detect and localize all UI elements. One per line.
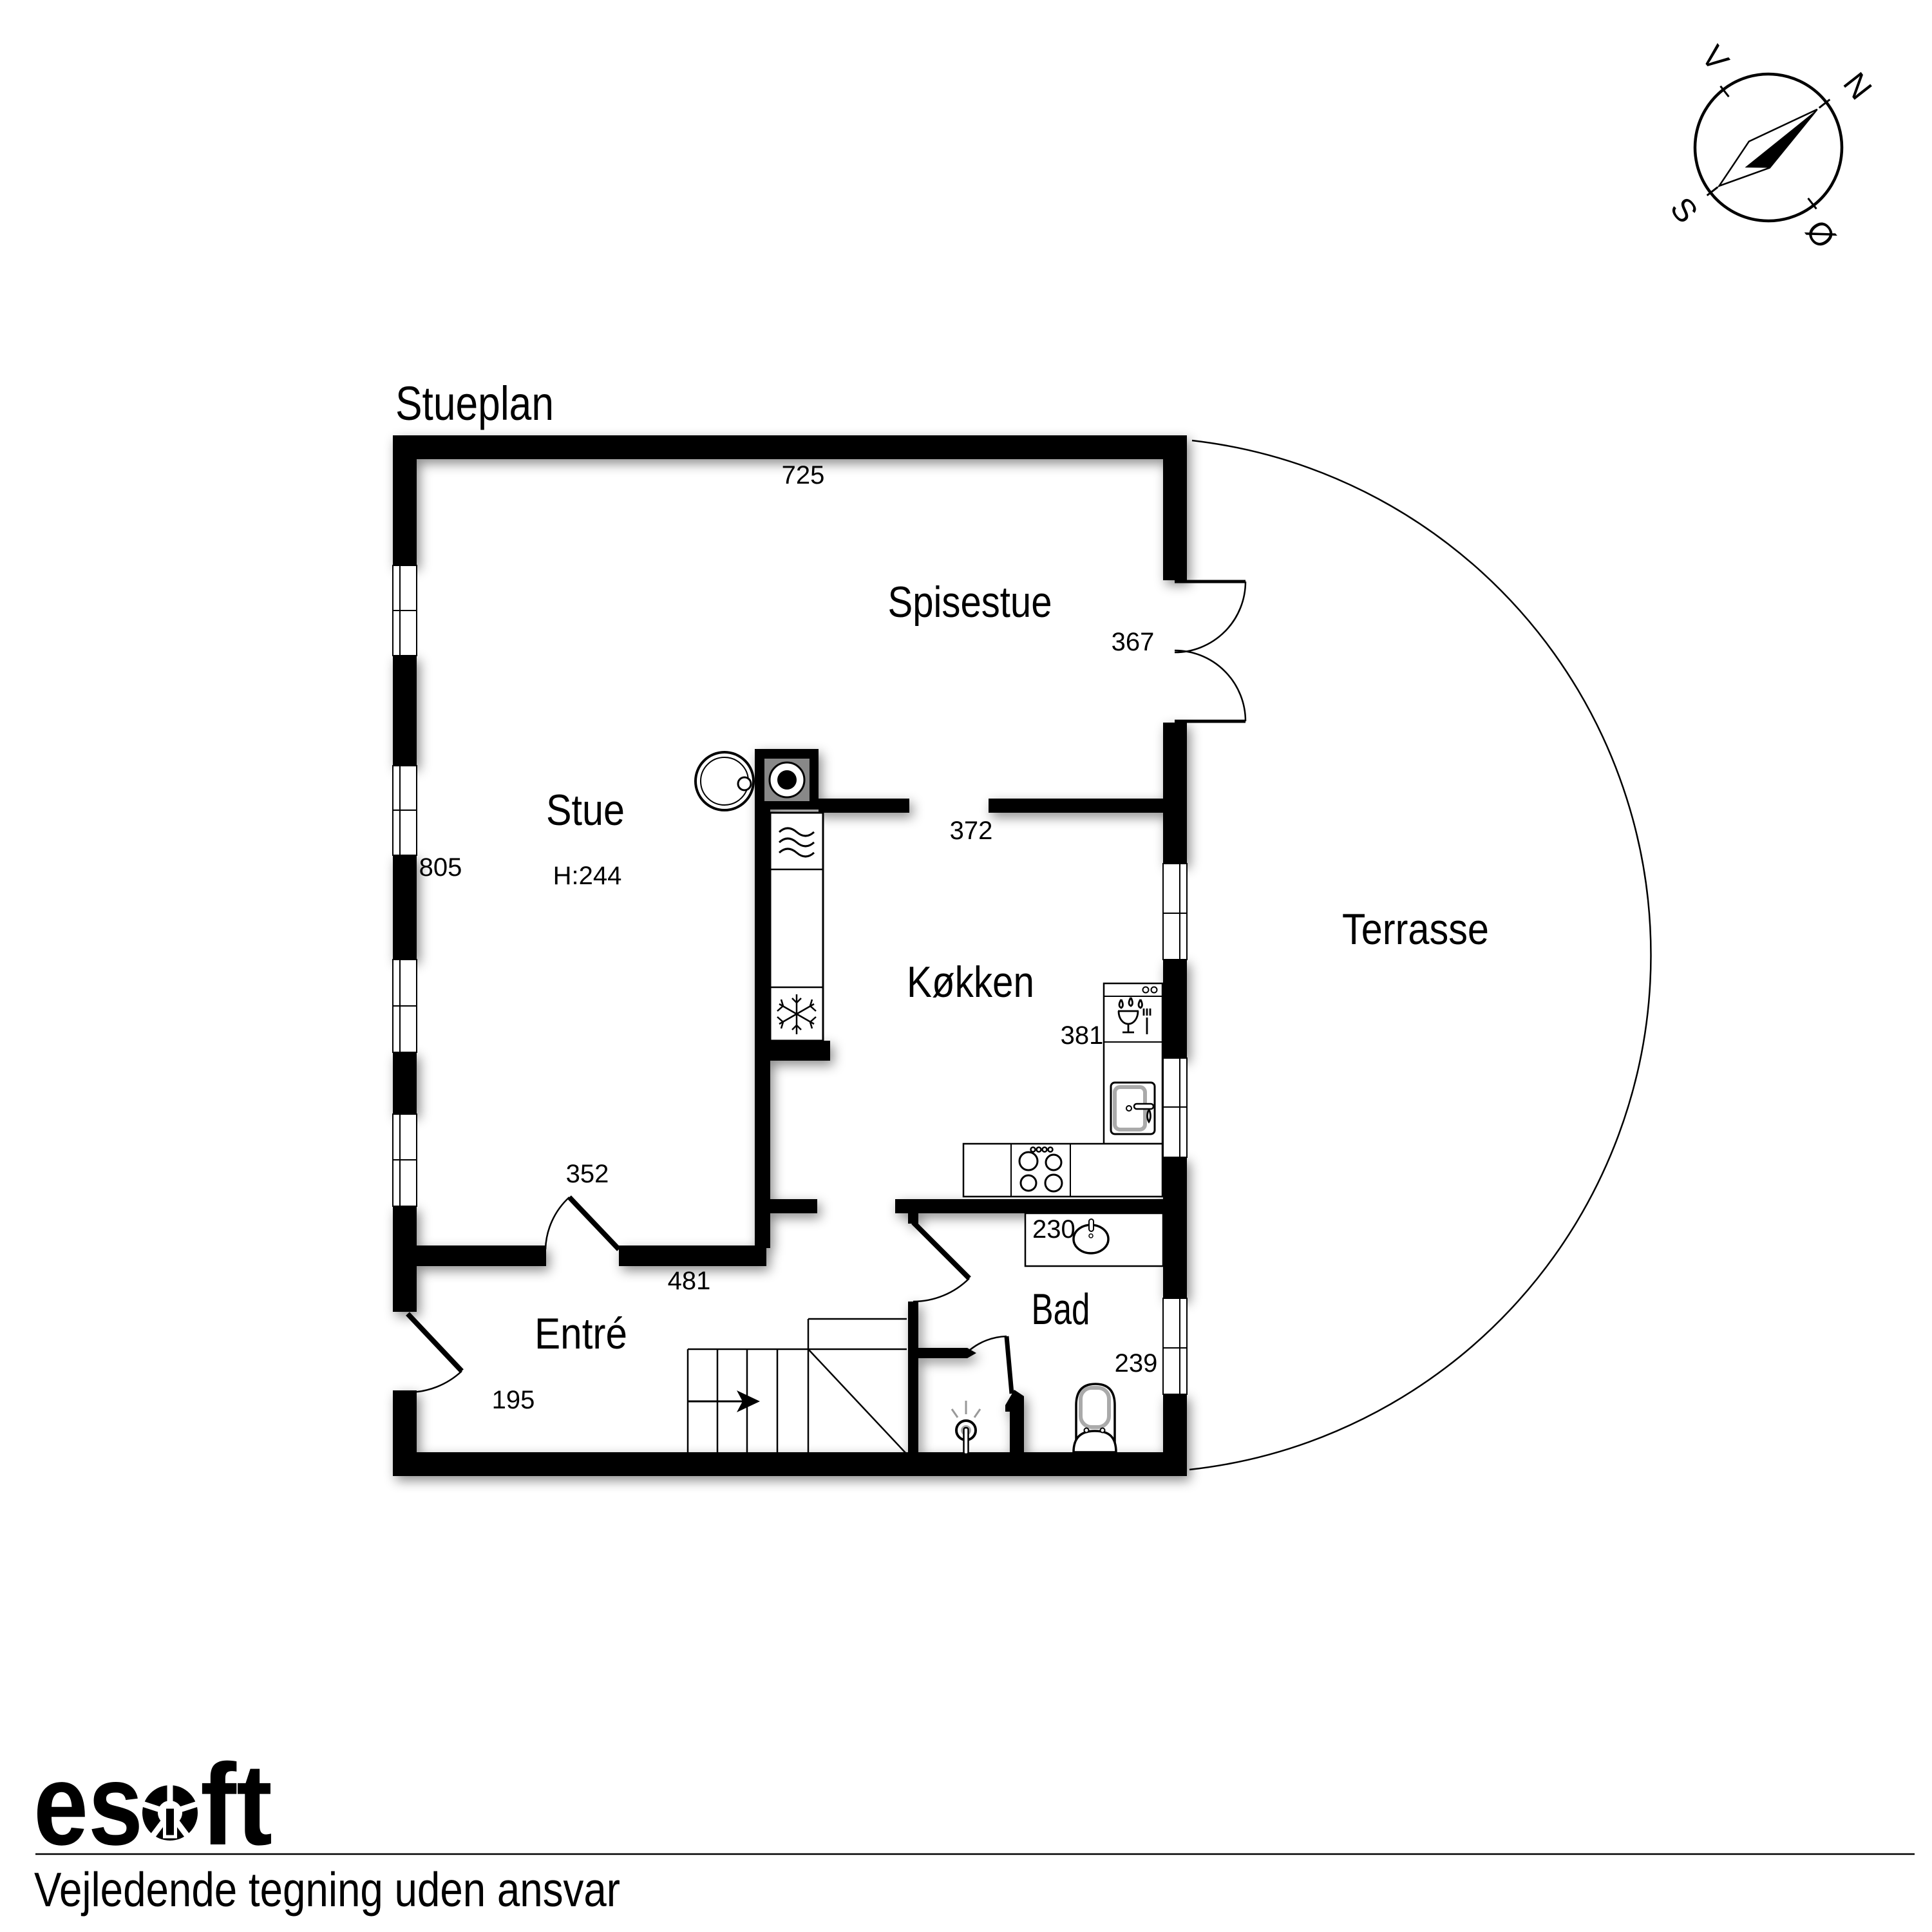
- svg-text:Køkken: Køkken: [907, 958, 1034, 1007]
- svg-text:Terrasse: Terrasse: [1342, 905, 1489, 954]
- svg-text:367: 367: [1112, 628, 1155, 656]
- svg-text:239: 239: [1115, 1349, 1158, 1378]
- svg-text:Stueplan: Stueplan: [395, 377, 554, 430]
- svg-text:230: 230: [1032, 1215, 1075, 1244]
- svg-text:805: 805: [419, 853, 462, 882]
- svg-text:381: 381: [1061, 1021, 1104, 1050]
- svg-text:352: 352: [566, 1160, 609, 1188]
- svg-text:725: 725: [782, 461, 825, 489]
- svg-text:Bad: Bad: [1032, 1285, 1090, 1334]
- svg-text:Vejledende tegning uden ansvar: Vejledende tegning uden ansvar: [34, 1862, 620, 1917]
- svg-text:372: 372: [950, 817, 993, 845]
- svg-text:Stue: Stue: [546, 786, 625, 835]
- svg-text:H:244: H:244: [553, 862, 622, 890]
- svg-text:es: es: [33, 1740, 143, 1870]
- svg-text:Entré: Entré: [535, 1309, 627, 1358]
- svg-text:ft: ft: [200, 1740, 272, 1870]
- svg-text:Spisestue: Spisestue: [888, 578, 1052, 627]
- svg-text:195: 195: [492, 1386, 535, 1414]
- svg-text:481: 481: [668, 1267, 711, 1295]
